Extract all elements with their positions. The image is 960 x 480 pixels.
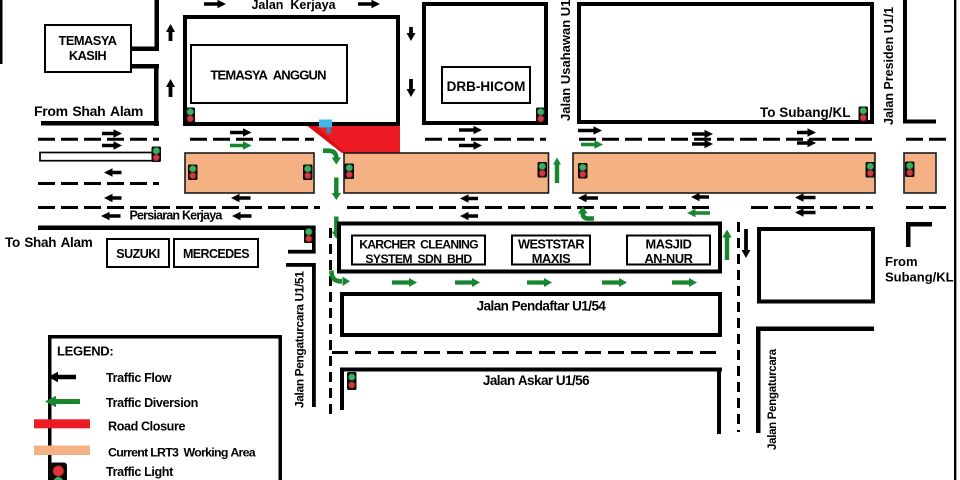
- svg-text:To Subang/KL: To Subang/KL: [760, 105, 851, 120]
- svg-text:Jalan Presiden U1/1: Jalan Presiden U1/1: [882, 7, 896, 125]
- svg-text:Jalan Pengaturcara: Jalan Pengaturcara: [767, 348, 779, 450]
- svg-text:SUZUKI: SUZUKI: [116, 247, 160, 261]
- svg-text:To Shah Alam: To Shah Alam: [5, 235, 93, 250]
- svg-text:Subang/KL: Subang/KL: [885, 270, 954, 285]
- svg-text:Jalan Pendaftar U1/54: Jalan Pendaftar U1/54: [477, 299, 607, 314]
- svg-text:SYSTEM SDN BHD: SYSTEM SDN BHD: [365, 252, 472, 266]
- svg-text:TEMASYA: TEMASYA: [59, 33, 117, 48]
- svg-text:Jalan Askar U1/56: Jalan Askar U1/56: [483, 373, 590, 388]
- svg-text:From: From: [885, 254, 918, 269]
- svg-text:Persiaran Kerjaya: Persiaran Kerjaya: [129, 209, 223, 223]
- svg-text:KASIH: KASIH: [69, 48, 107, 63]
- svg-text:DRB-HICOM: DRB-HICOM: [447, 79, 526, 94]
- svg-text:MASJID: MASJID: [646, 237, 692, 252]
- svg-text:Jalan Kerjaya: Jalan Kerjaya: [251, 0, 336, 12]
- svg-text:Jalan Pengaturcara U1/51: Jalan Pengaturcara U1/51: [293, 271, 307, 408]
- svg-text:Traffic Diversion: Traffic Diversion: [106, 396, 198, 410]
- svg-text:Traffic Light: Traffic Light: [106, 465, 174, 479]
- svg-text:From Shah Alam: From Shah Alam: [34, 103, 143, 119]
- svg-text:TEMASYA ANGGUN: TEMASYA ANGGUN: [210, 68, 326, 83]
- svg-text:WESTSTAR: WESTSTAR: [518, 237, 584, 252]
- svg-text:MERCEDES: MERCEDES: [183, 247, 249, 261]
- svg-text:Traffic Flow: Traffic Flow: [106, 371, 172, 385]
- svg-text:Jalan Usahawan U1/5: Jalan Usahawan U1/5: [558, 0, 573, 121]
- svg-text:KARCHER CLEANING: KARCHER CLEANING: [359, 238, 478, 252]
- svg-text:Current LRT3 Working Area: Current LRT3 Working Area: [108, 446, 256, 460]
- svg-text:MAXIS: MAXIS: [532, 251, 571, 266]
- svg-text:AN-NUR: AN-NUR: [644, 251, 692, 266]
- svg-text:Road Closure: Road Closure: [108, 420, 185, 434]
- svg-text:LEGEND:: LEGEND:: [57, 344, 113, 359]
